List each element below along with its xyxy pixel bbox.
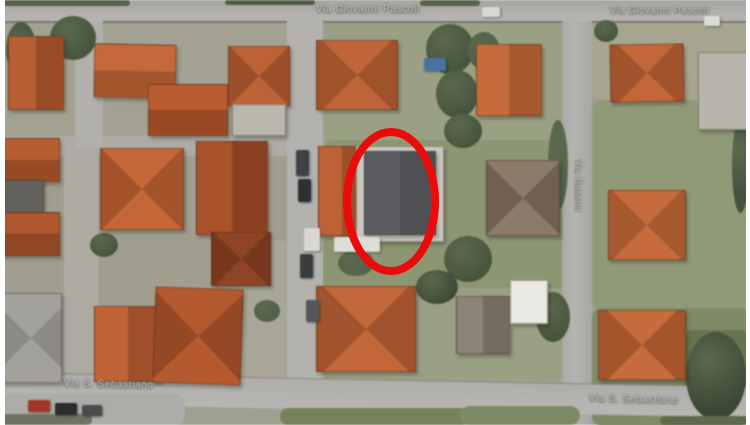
house <box>486 160 560 236</box>
street-label-top-center: Via Giovanni Pascoli <box>316 4 420 15</box>
car <box>704 16 720 26</box>
lawn-patch <box>225 0 315 5</box>
car <box>306 300 319 322</box>
house <box>456 296 510 354</box>
lawn-patch <box>0 414 92 425</box>
street-label-right-vertical: Via Rossini <box>574 160 584 211</box>
tree <box>416 270 458 304</box>
pool <box>424 58 446 71</box>
car <box>296 150 309 176</box>
highlight-ellipse <box>343 128 439 275</box>
house <box>698 52 750 130</box>
house <box>148 84 228 136</box>
car <box>28 400 50 412</box>
satellite-map[interactable]: Via Giovanni Pascoli Via Giovanni Pascol… <box>0 0 750 425</box>
tree <box>436 70 478 118</box>
lawn-patch <box>460 406 580 425</box>
tree <box>594 20 618 42</box>
page-margin-right <box>746 0 750 425</box>
street-label-top-right: Via Giovanni Pascoli <box>610 5 709 16</box>
house <box>609 43 684 102</box>
house <box>0 212 60 256</box>
house <box>211 232 271 286</box>
house <box>196 141 268 235</box>
tree <box>90 233 118 257</box>
house <box>0 293 62 383</box>
house <box>476 44 542 116</box>
house <box>232 104 286 136</box>
lawn-patch <box>420 0 480 6</box>
house <box>152 286 243 385</box>
car <box>300 254 313 278</box>
lawn-patch <box>660 416 750 425</box>
lawn-patch <box>64 150 98 378</box>
street-right-vertical <box>562 21 592 425</box>
car <box>482 7 500 17</box>
house <box>100 148 184 230</box>
house <box>0 138 60 182</box>
house <box>608 190 686 260</box>
house <box>510 280 548 324</box>
tree <box>254 300 280 322</box>
house <box>316 40 398 110</box>
car <box>55 403 77 415</box>
car <box>82 405 102 416</box>
tree <box>444 114 482 148</box>
house <box>598 310 686 380</box>
house <box>4 180 44 214</box>
car <box>304 228 320 251</box>
lawn-patch <box>280 408 470 425</box>
page-margin-left <box>0 0 5 425</box>
tree <box>686 332 746 420</box>
house <box>316 286 416 372</box>
page: Via Giovanni Pascoli Via Giovanni Pascol… <box>0 0 750 425</box>
house <box>228 46 290 106</box>
car <box>298 179 311 202</box>
street-label-bottom-left: Via S. Sebastiano <box>64 378 154 391</box>
house <box>8 36 64 110</box>
lawn-patch <box>0 0 130 6</box>
street-label-bottom-right: Via S. Sebastiano <box>589 393 679 406</box>
